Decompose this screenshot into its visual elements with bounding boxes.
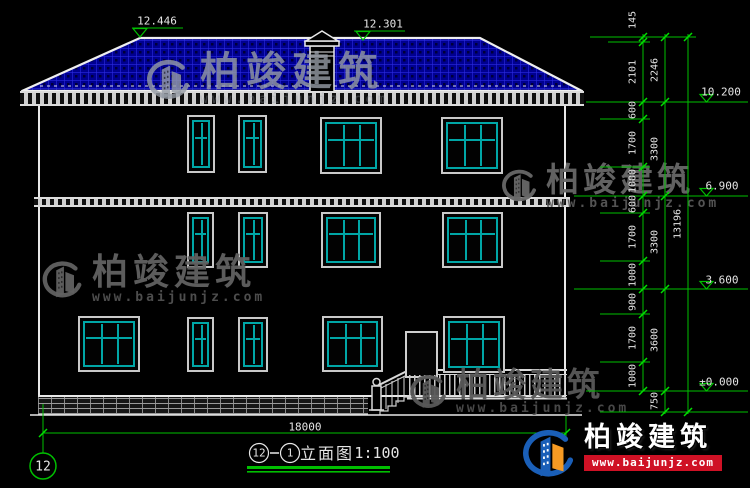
dim-label: 1700	[628, 326, 639, 350]
dim-label: 3600	[650, 328, 661, 352]
dim-label: 12.301	[363, 18, 403, 31]
dim-label: 900	[628, 293, 639, 311]
brand-url: www.baijunjz.com	[584, 455, 722, 471]
dim-label: 12	[35, 460, 51, 475]
dim-label: ±0.000	[699, 376, 739, 389]
dim-label: 10.200	[701, 86, 741, 99]
dim-label: 3.600	[705, 274, 738, 287]
dim-label: 1	[287, 447, 294, 460]
dim-label: 2101	[628, 60, 639, 84]
dim-label: 1000	[628, 263, 639, 287]
dim-label: 1700	[628, 225, 639, 249]
dim-label: 1:100	[354, 444, 399, 462]
dim-label: 3300	[650, 137, 661, 161]
dim-label: 600	[628, 195, 639, 213]
dim-label: 1000	[628, 364, 639, 388]
dim-label: 13196	[673, 209, 684, 239]
dim-label: 12	[252, 447, 265, 460]
brand-name: 柏竣建筑	[584, 423, 722, 453]
dim-label: 600	[628, 101, 639, 119]
dim-label: 6.900	[705, 180, 738, 193]
dim-label: 2246	[650, 58, 661, 82]
dim-label: 18000	[288, 421, 321, 434]
dim-label: 3300	[650, 230, 661, 254]
elevation-drawing-canvas: 柏竣建筑 www.baijunjz.com 柏竣建筑 www.baijunjz.…	[0, 0, 750, 488]
dim-label: 1000	[628, 169, 639, 193]
brand-logo-icon	[516, 423, 580, 485]
dim-label: 750	[650, 392, 661, 410]
title-underline	[247, 466, 390, 469]
dim-label: 12.446	[137, 15, 177, 28]
dim-label: 145	[628, 11, 639, 29]
dim-label: 立面图	[300, 440, 354, 464]
brand-logo: 柏竣建筑 www.baijunjz.com	[516, 423, 722, 485]
dim-label: 1700	[628, 131, 639, 155]
